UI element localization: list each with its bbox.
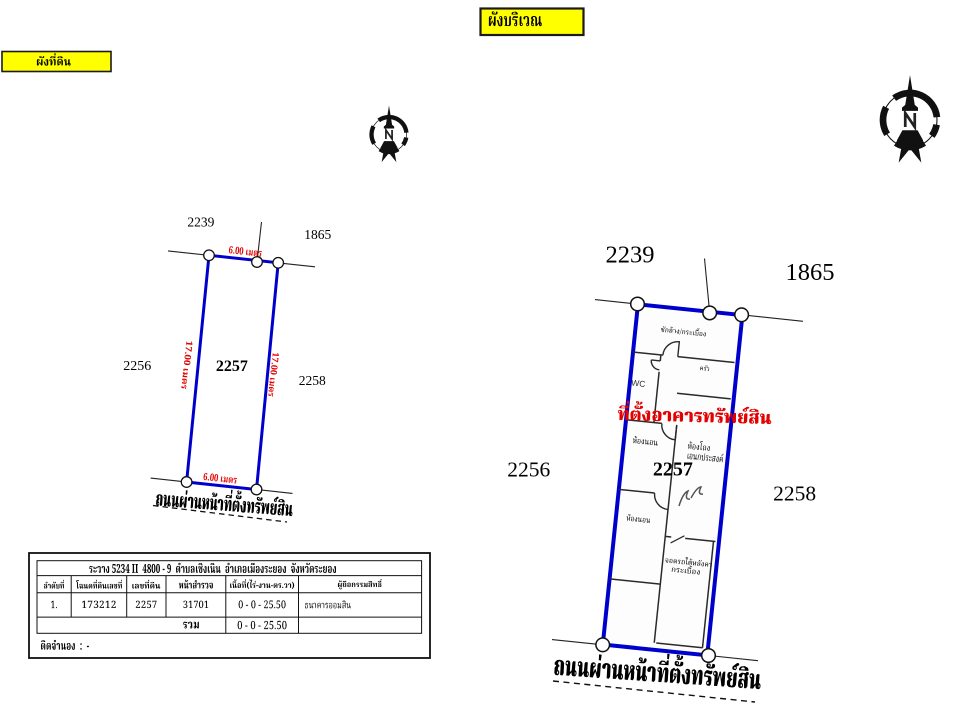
svg-text:2257: 2257	[653, 459, 693, 481]
svg-text:2257: 2257	[216, 358, 248, 375]
svg-text:2256: 2256	[123, 359, 151, 374]
svg-text:1865: 1865	[786, 259, 835, 286]
svg-text:2239: 2239	[187, 215, 214, 230]
svg-text:1865: 1865	[304, 227, 331, 242]
svg-text:2258: 2258	[773, 481, 816, 505]
svg-text:2256: 2256	[507, 457, 550, 481]
svg-text:WC: WC	[631, 378, 646, 389]
svg-text:2239: 2239	[606, 242, 655, 269]
svg-text:2258: 2258	[299, 373, 326, 388]
